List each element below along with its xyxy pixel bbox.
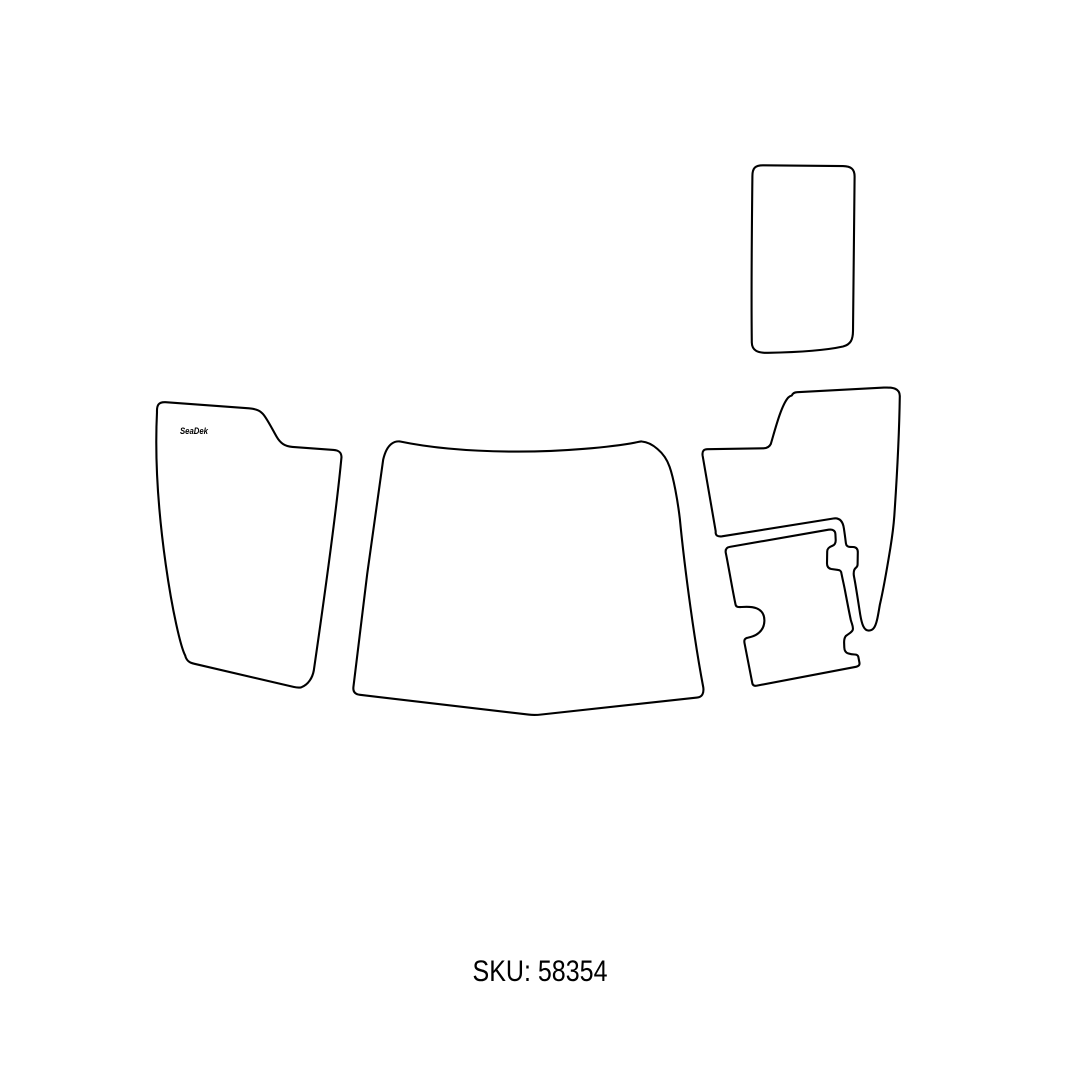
svg-text:SKU: 58354: SKU: 58354 xyxy=(473,955,608,988)
svg-text:SeaDek: SeaDek xyxy=(180,426,209,436)
